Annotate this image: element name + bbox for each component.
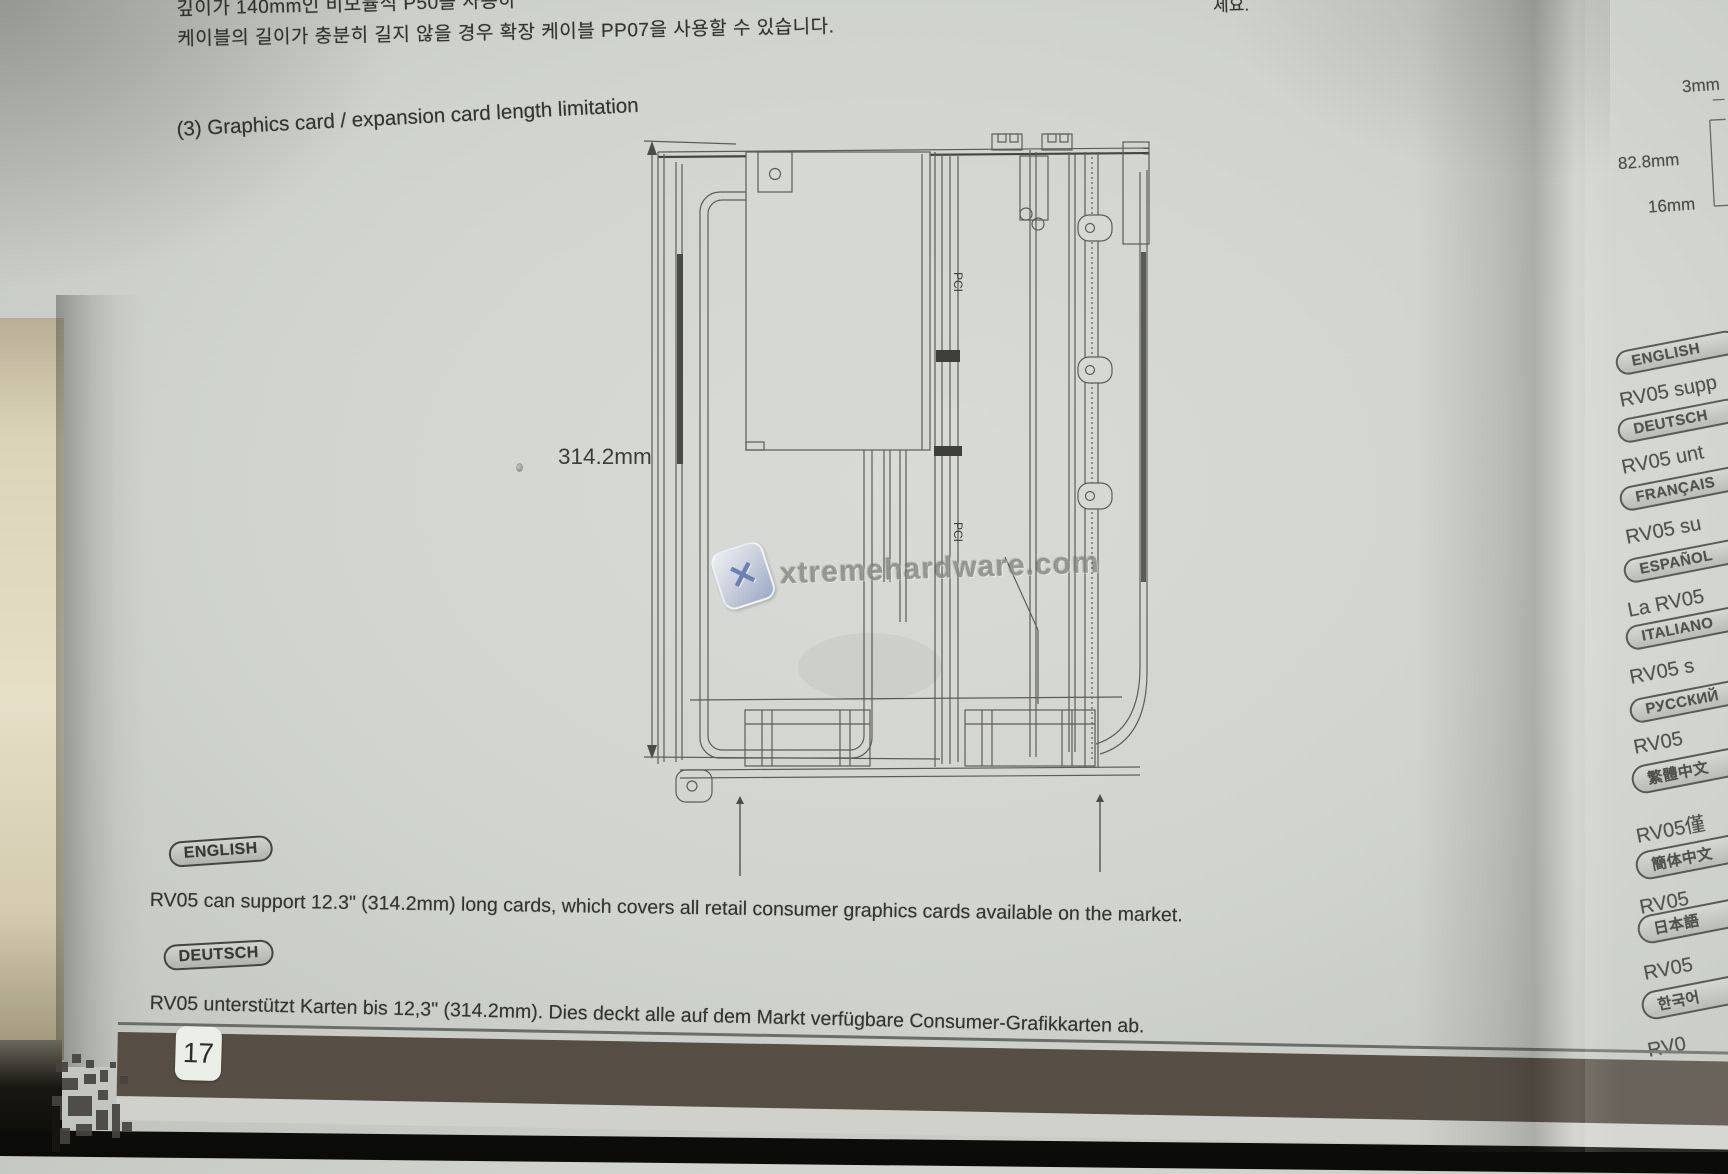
pci-label-upper: PCI <box>951 272 965 292</box>
photo-shadow-topright <box>1150 0 1610 260</box>
next-page-dim-3mm: 3mm <box>1681 75 1720 98</box>
next-page-dim-82mm: 82.8mm <box>1617 150 1680 174</box>
pixel-pattern-decoration <box>52 1042 156 1152</box>
thumbscrew-tabs <box>1078 215 1112 509</box>
diagram-lines <box>644 134 1149 876</box>
paper-speck <box>516 463 523 472</box>
next-page-text-fragment: RV05 <box>1632 728 1685 760</box>
deutsch-language-badge: DEUTSCH <box>163 939 274 971</box>
korean-fragment-top-right: 세요. <box>1213 0 1250 16</box>
page-fold-shadow <box>1415 0 1620 1152</box>
next-page-diagram-fragment <box>1697 97 1728 228</box>
next-page-text-fragment: RV05 su <box>1624 513 1703 550</box>
page-number-badge: 17 <box>175 1026 223 1081</box>
page-edge-shadow <box>56 295 148 1067</box>
next-page-lang-badge-english: ENGLISH <box>1614 329 1728 377</box>
manual-photo-page: { "page": { "korean_line1": "깊이가 140mm인 … <box>0 0 1728 1152</box>
case-side-diagram: 314.2mm PCI PCI <box>540 112 1180 902</box>
next-page-text-fragment: RV05 <box>1642 954 1695 986</box>
table-surface-strip <box>0 318 64 1060</box>
dimension-label: 314.2mm <box>558 444 652 469</box>
next-page-language-column: ENGLISH RV05 supp DEUTSCH RV05 unt FRANÇ… <box>1600 344 1728 1084</box>
next-page-text-fragment: RV05 s <box>1628 655 1696 690</box>
xtremehardware-logo-icon: ✕ <box>708 539 778 613</box>
watermark-text: xtremehardware.com <box>779 546 1100 591</box>
photo-shadow-topleft <box>0 0 560 420</box>
next-page-dim-16mm: 16mm <box>1647 194 1696 217</box>
english-language-badge: ENGLISH <box>168 835 273 868</box>
